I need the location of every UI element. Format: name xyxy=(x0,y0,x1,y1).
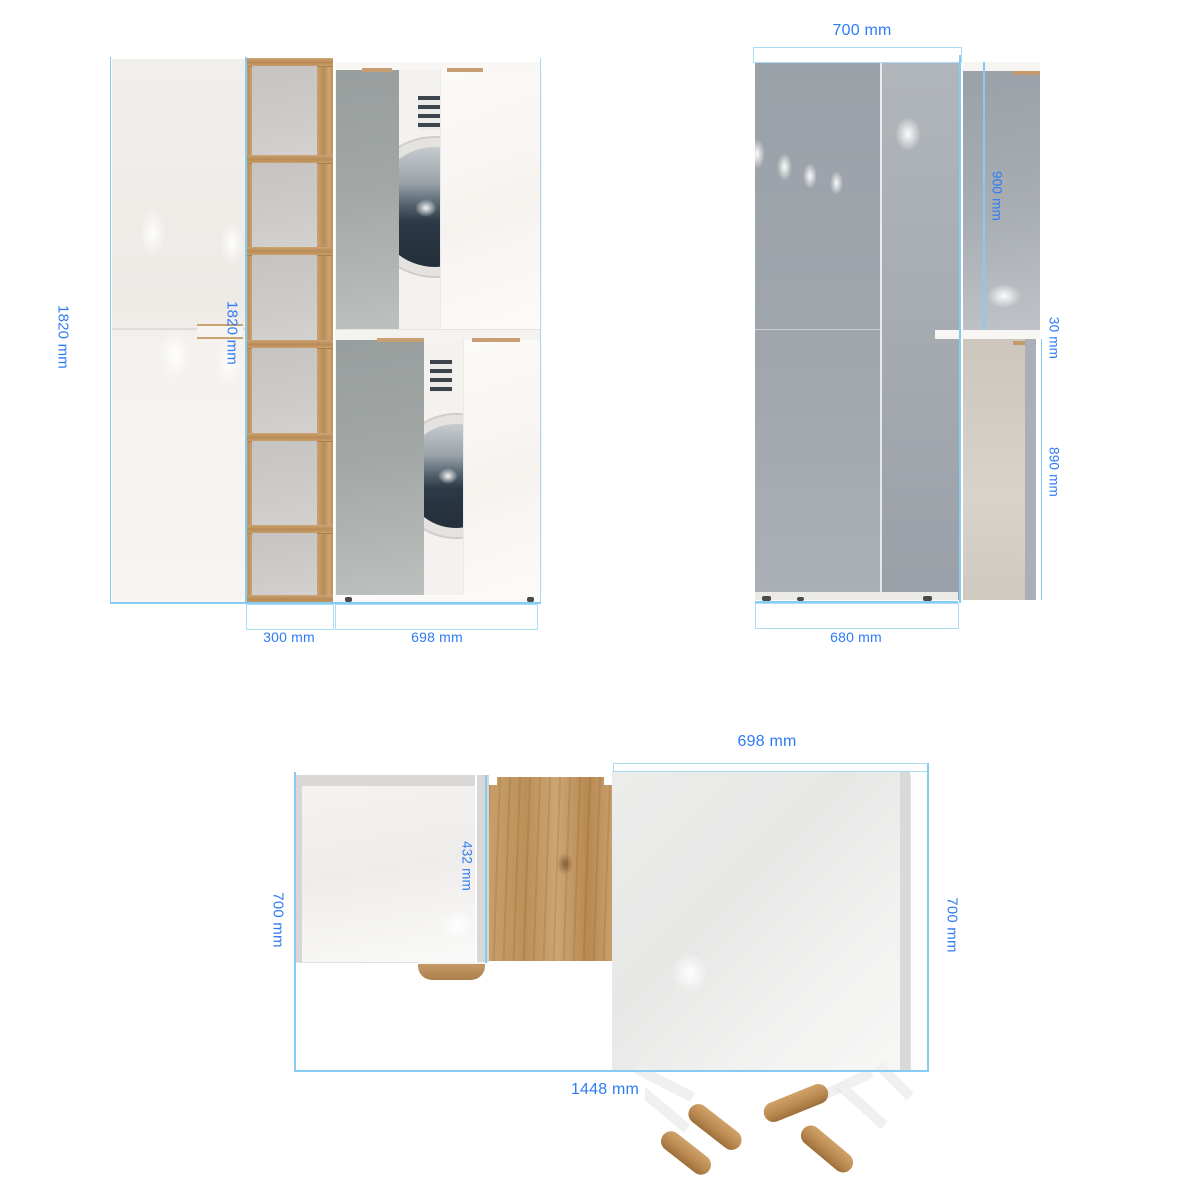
base-depth-dim-label: 680 mm xyxy=(830,629,882,645)
bench-leg[interactable] xyxy=(657,1127,715,1178)
side-depth-dim-label: 700 mm xyxy=(833,22,892,40)
lower-panel-dim-line xyxy=(1041,339,1042,600)
plan-outline-bottom xyxy=(294,1070,929,1072)
plan-right-panel[interactable] xyxy=(612,770,910,1072)
lower-washer-niche xyxy=(424,340,463,595)
plan-right-depth-dim-label: 700 mm xyxy=(944,897,961,952)
panel-notch xyxy=(604,777,612,785)
plan-outline-right xyxy=(927,763,929,1071)
side-panel-main[interactable] xyxy=(755,55,958,600)
shelf-back-panel xyxy=(252,66,317,155)
bench-leg[interactable] xyxy=(797,1121,857,1176)
washer-control-panel xyxy=(418,96,440,130)
plan-left-depth-dim-label: 700 mm xyxy=(270,892,287,947)
light-reflection xyxy=(830,171,843,195)
upper-white-door[interactable] xyxy=(440,70,542,329)
panel-edge-strip xyxy=(1025,339,1036,600)
selection-outline xyxy=(959,55,961,603)
shelf-back-panel xyxy=(252,533,317,595)
wood-knot xyxy=(557,853,573,875)
washer-drum-door xyxy=(424,415,463,537)
total-width-dim-label: 1448 mm xyxy=(565,1080,645,1100)
lower-white-door[interactable] xyxy=(463,340,542,595)
light-reflection xyxy=(441,909,473,941)
laundry-cabinet-front[interactable] xyxy=(335,62,541,602)
panel-seam xyxy=(755,329,880,330)
side-back-shelf xyxy=(935,330,1040,339)
drum-glare xyxy=(438,468,458,484)
top-gap-dim-label: 30 mm xyxy=(1047,317,1062,359)
light-reflection xyxy=(140,209,166,257)
door-handle[interactable] xyxy=(472,338,520,342)
light-reflection xyxy=(672,953,708,993)
plan-wood-panel[interactable] xyxy=(489,777,612,961)
front-bottom-line xyxy=(110,602,541,604)
plan-outline-left xyxy=(294,772,296,1071)
plinth xyxy=(335,595,541,602)
shelf-back-panel xyxy=(252,441,317,525)
cabinet-width-dim-box xyxy=(335,604,538,630)
base-depth-dim-box xyxy=(755,603,959,629)
shelf-back-panel xyxy=(252,255,317,340)
lower-panel-dim-label: 890 mm xyxy=(1047,447,1062,497)
plan-width-dim-box xyxy=(613,763,929,772)
selection-outline-left xyxy=(245,57,247,603)
plan-width-dim-label: 698 mm xyxy=(738,733,797,751)
plan-back-band xyxy=(910,775,928,1070)
shelf-back-panel xyxy=(252,348,317,433)
front-inner-height-dim-label: 1820 mm xyxy=(224,301,241,365)
side-bottom-line xyxy=(755,601,958,603)
washer-drum-door xyxy=(399,138,440,276)
inner-depth-dim-line xyxy=(485,775,487,963)
light-reflection xyxy=(777,153,792,181)
planner-canvas: 1820 mm 1820 mm xyxy=(0,0,1200,1200)
shelf-back-panel xyxy=(252,163,317,247)
upper-washer-niche xyxy=(399,70,440,329)
cabinet-width-dim-label: 698 mm xyxy=(411,629,463,645)
plan-left-panel[interactable] xyxy=(295,775,487,963)
lower-mirror-door[interactable] xyxy=(336,340,424,595)
bench-leg[interactable] xyxy=(761,1081,832,1125)
light-reflection xyxy=(895,117,921,151)
shelf-width-dim-label: 300 mm xyxy=(263,629,315,645)
washer-control-panel xyxy=(430,360,452,392)
front-height-dim-line xyxy=(110,57,111,603)
side-depth-dim-box xyxy=(753,47,962,63)
wood-edge-sliver xyxy=(1013,71,1040,75)
plan-wood-handle[interactable] xyxy=(418,962,485,980)
selection-outline-right xyxy=(540,58,541,603)
panel-top-edge xyxy=(295,775,487,786)
upper-mirror-door[interactable] xyxy=(336,70,399,329)
light-reflection xyxy=(803,163,817,189)
wood-edge-sliver xyxy=(1013,341,1025,345)
shelf-unit[interactable] xyxy=(247,58,333,603)
door-height-dim-line xyxy=(983,62,985,330)
inner-depth-dim-label: 432 mm xyxy=(460,841,475,891)
door-handle[interactable] xyxy=(362,68,392,72)
leg-strap xyxy=(837,1081,888,1128)
panel-notch xyxy=(489,777,497,785)
side-back-lower-panel[interactable] xyxy=(963,339,1036,600)
panel-top-edge xyxy=(963,62,1040,71)
panel-side-edge xyxy=(295,775,302,962)
light-reflection xyxy=(987,284,1021,308)
shelf-stile xyxy=(317,58,333,603)
front-height-dim-label: 1820 mm xyxy=(55,305,72,369)
door-handle[interactable] xyxy=(447,68,483,72)
light-reflection xyxy=(160,329,190,381)
door-handle[interactable] xyxy=(377,338,424,342)
shelf-width-dim-box xyxy=(246,604,334,630)
door-height-dim-label: 900 mm xyxy=(990,171,1005,221)
light-reflection xyxy=(749,139,765,169)
light-reflection xyxy=(220,221,244,265)
drum-glare xyxy=(415,199,437,217)
panel-edge-strip xyxy=(900,771,910,1072)
